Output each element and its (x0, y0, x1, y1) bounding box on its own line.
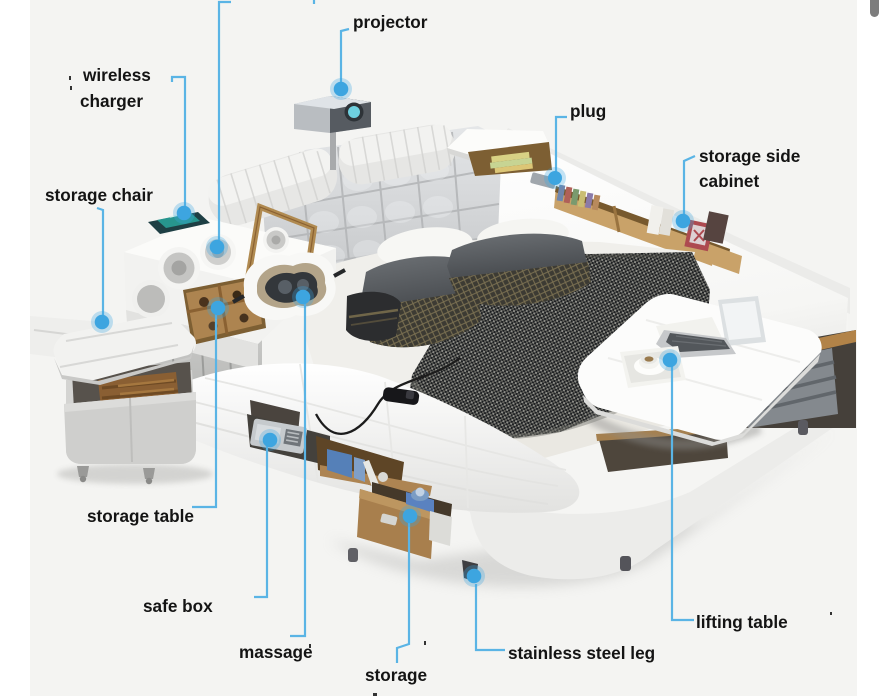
svg-text:storage: storage (365, 665, 427, 685)
svg-text:projector: projector (353, 12, 428, 32)
svg-text:plug: plug (570, 101, 606, 121)
svg-text:storage table: storage table (87, 506, 194, 526)
svg-text:storage side: storage side (699, 146, 800, 166)
svg-text:storage chair: storage chair (45, 185, 153, 205)
svg-text:stainless steel leg: stainless steel leg (508, 643, 655, 663)
svg-text:massage: massage (239, 642, 313, 662)
svg-text:cabinet: cabinet (699, 171, 759, 191)
svg-text:charger: charger (80, 91, 143, 111)
svg-text:wireless: wireless (82, 65, 151, 85)
svg-text:safe box: safe box (143, 596, 213, 616)
svg-text:lifting table: lifting table (696, 612, 788, 632)
